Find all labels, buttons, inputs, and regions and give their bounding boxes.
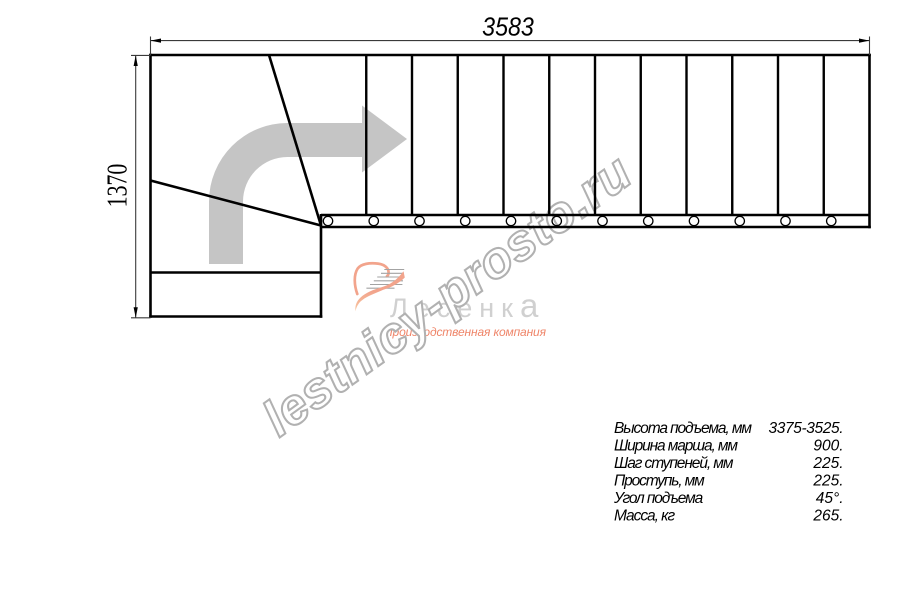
svg-text:3375-3525.: 3375-3525. xyxy=(769,420,844,437)
svg-text:3583: 3583 xyxy=(482,14,534,42)
svg-text:45°.: 45°. xyxy=(816,490,844,507)
svg-text:1370: 1370 xyxy=(102,164,133,208)
svg-text:Масса, кг: Масса, кг xyxy=(614,507,675,524)
svg-text:Угол подъема: Угол подъема xyxy=(613,490,704,507)
svg-text:Ширина марша, мм: Ширина марша, мм xyxy=(614,438,738,455)
svg-text:225.: 225. xyxy=(812,455,843,472)
svg-text:Шаг ступеней, мм: Шаг ступеней, мм xyxy=(614,455,734,472)
svg-text:Проступь, мм: Проступь, мм xyxy=(614,473,705,490)
svg-text:900.: 900. xyxy=(813,438,843,455)
svg-text:265.: 265. xyxy=(812,507,843,524)
svg-text:Высота подъема, мм: Высота подъема, мм xyxy=(614,420,752,437)
svg-text:225.: 225. xyxy=(812,473,843,490)
